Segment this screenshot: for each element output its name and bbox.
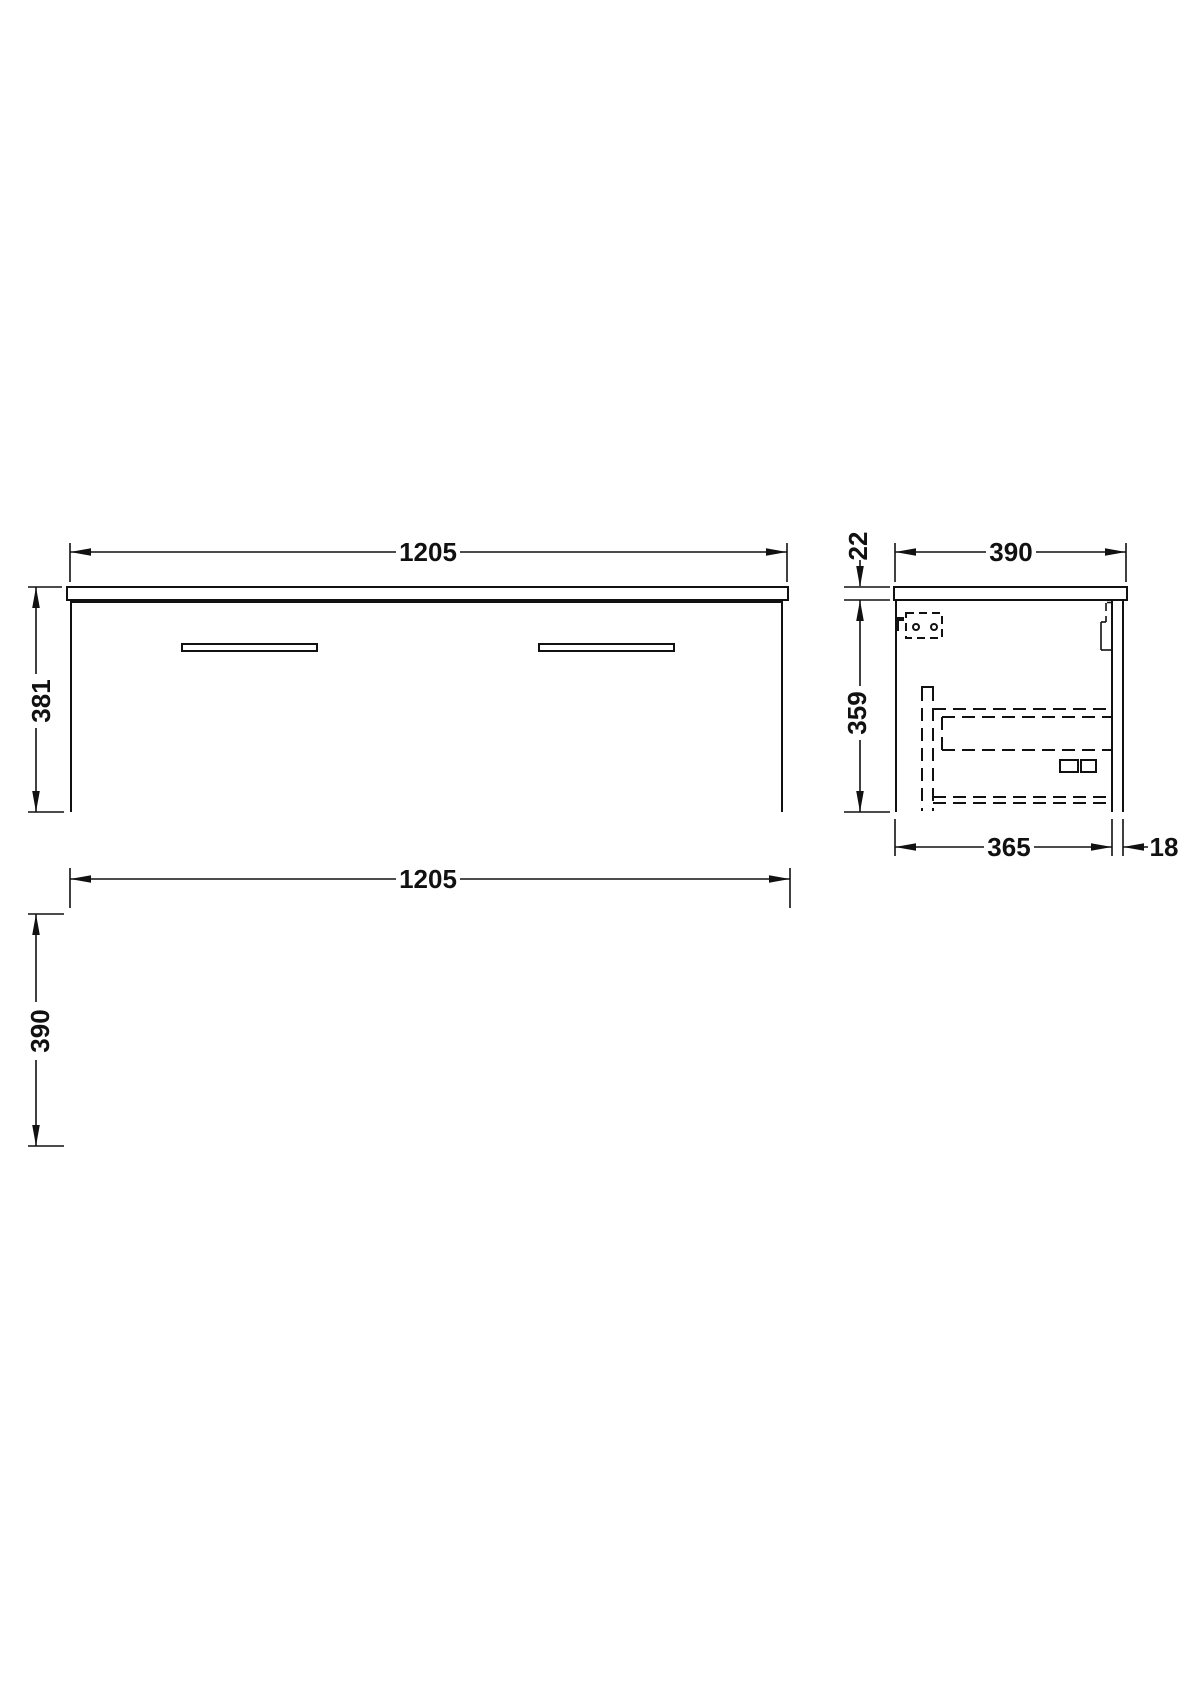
side-carcass-depth-dimension: 365 18: [895, 819, 1178, 862]
front-height-label: 381: [26, 679, 56, 722]
side-carcass-depth-label: 365: [987, 832, 1030, 862]
plan-width-label: 1205: [399, 864, 457, 894]
side-height-dimension: 359: [842, 600, 890, 812]
front-width-dimension: 1205: [70, 537, 787, 582]
side-worktop-thickness-dimension: 22: [843, 532, 890, 621]
plan-depth-dimension: 390: [25, 914, 64, 1146]
side-unit-outline: [894, 587, 1127, 812]
front-view: 1205 381: [26, 537, 788, 812]
side-worktop-thickness-label: 22: [843, 532, 873, 561]
side-height-label: 359: [842, 691, 872, 734]
side-back-panel-label: 18: [1150, 832, 1179, 862]
front-worktop: [67, 587, 788, 600]
plan-depth-label: 390: [25, 1009, 55, 1052]
side-depth-dimension: 390: [895, 537, 1126, 582]
front-left-drawer-handle: [182, 644, 317, 651]
front-right-drawer-handle: [539, 644, 674, 651]
bracket-screw-hole: [931, 624, 937, 630]
bracket-screw-hole: [913, 624, 919, 630]
side-hanging-rail-hidden: [1101, 603, 1112, 651]
technical-drawing-page: 1205 381: [0, 0, 1200, 1698]
plan-view: 1205 390: [25, 864, 790, 1146]
vanity-unit-drawing: 1205 381: [0, 0, 1200, 1698]
side-worktop: [894, 587, 1127, 600]
bracket-hook: [896, 617, 904, 631]
side-depth-label: 390: [989, 537, 1032, 567]
plan-worktop-outline: [70, 914, 788, 1146]
front-height-dimension: 381: [26, 587, 64, 812]
front-unit-outline: [67, 587, 788, 812]
plan-width-dimension: 1205: [70, 864, 790, 908]
side-drawer-hidden-detail: [921, 687, 1112, 811]
side-wall-bracket: [896, 613, 942, 638]
side-view: 390 22 359: [842, 532, 1178, 862]
front-width-label: 1205: [399, 537, 457, 567]
